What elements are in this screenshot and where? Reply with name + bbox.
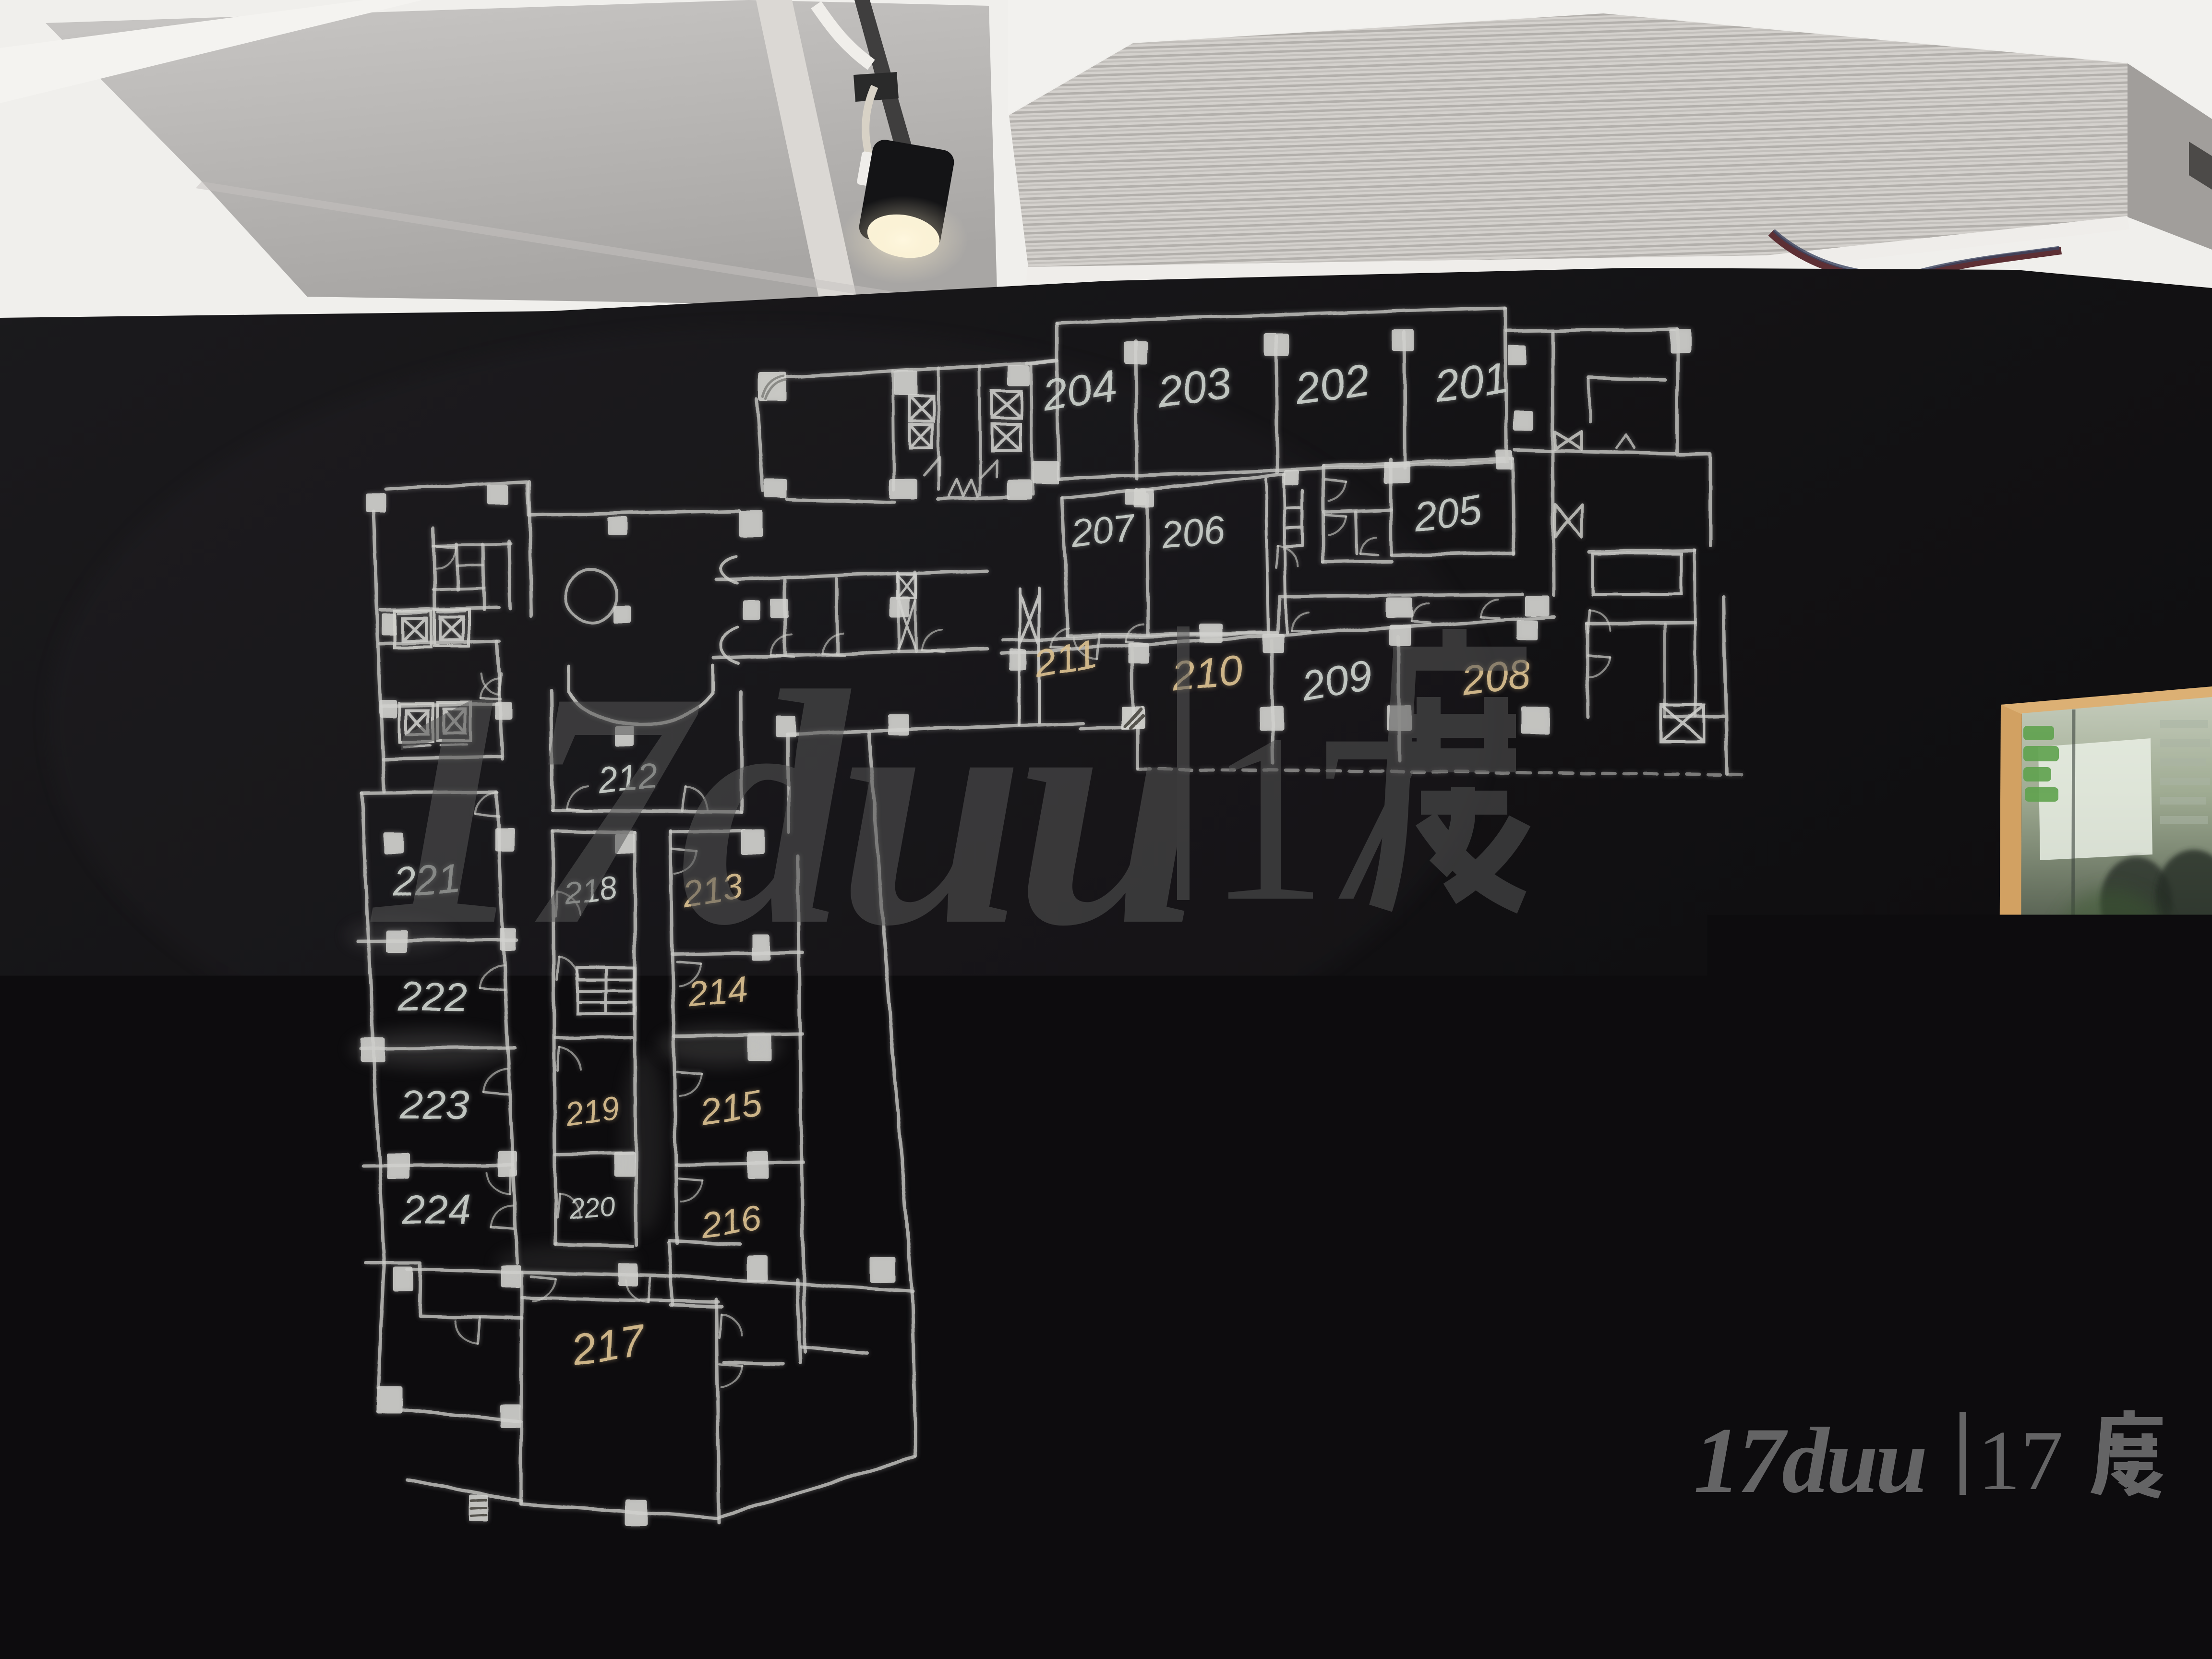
svg-text:203: 203: [1154, 358, 1234, 417]
svg-text:207: 207: [1069, 505, 1138, 555]
svg-text:17duu: 17duu: [1694, 1408, 1925, 1513]
svg-text:202: 202: [1292, 355, 1372, 414]
svg-text:223: 223: [399, 1082, 469, 1128]
svg-text:205: 205: [1411, 486, 1484, 541]
svg-text:224: 224: [402, 1187, 471, 1233]
svg-text:204: 204: [1039, 361, 1119, 421]
svg-text:220: 220: [568, 1190, 617, 1225]
svg-text:217: 217: [569, 1317, 649, 1374]
svg-text:17: 17: [1978, 1413, 2063, 1508]
svg-text:219: 219: [562, 1090, 622, 1133]
svg-text:216: 216: [698, 1197, 764, 1246]
svg-text:201: 201: [1431, 353, 1512, 412]
svg-text:206: 206: [1158, 507, 1227, 557]
svg-text:17duu: 17duu: [362, 623, 1193, 995]
